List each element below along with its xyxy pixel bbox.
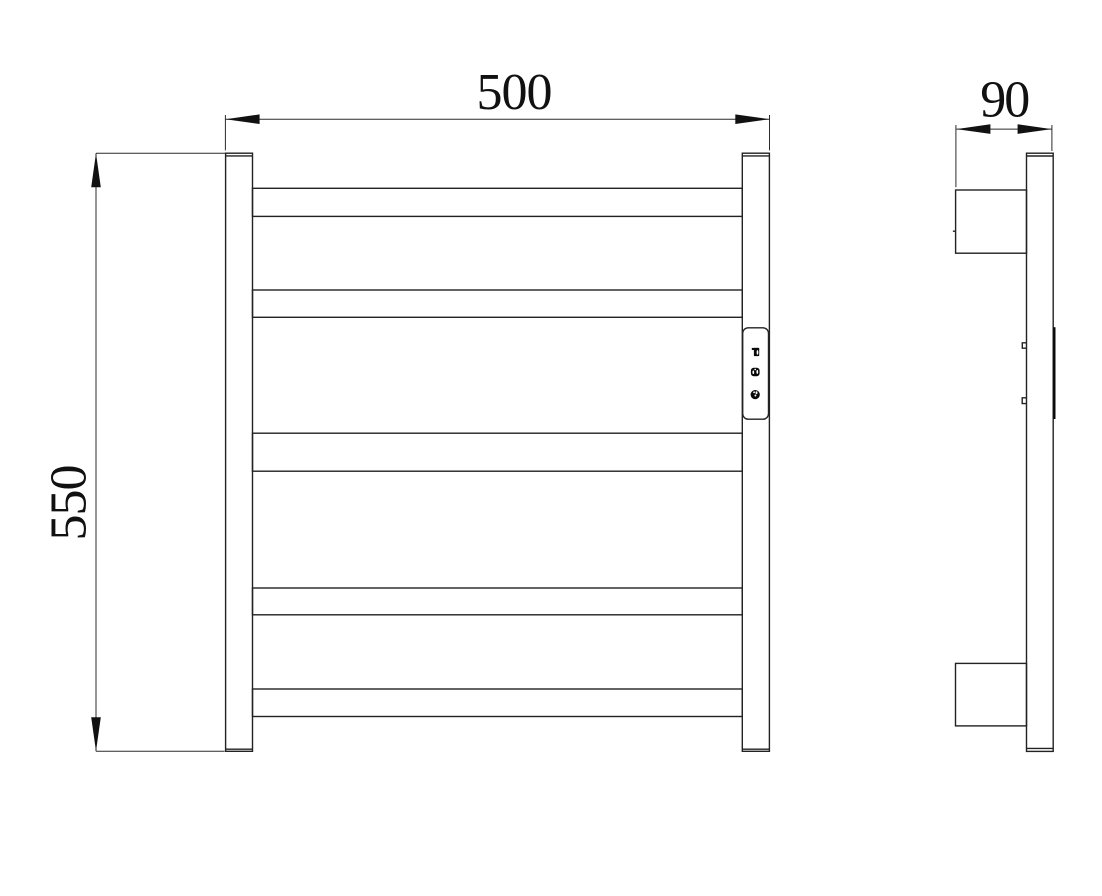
- svg-text:550: 550: [41, 466, 98, 541]
- svg-text:500: 500: [477, 64, 552, 121]
- svg-text:90: 90: [980, 72, 1029, 129]
